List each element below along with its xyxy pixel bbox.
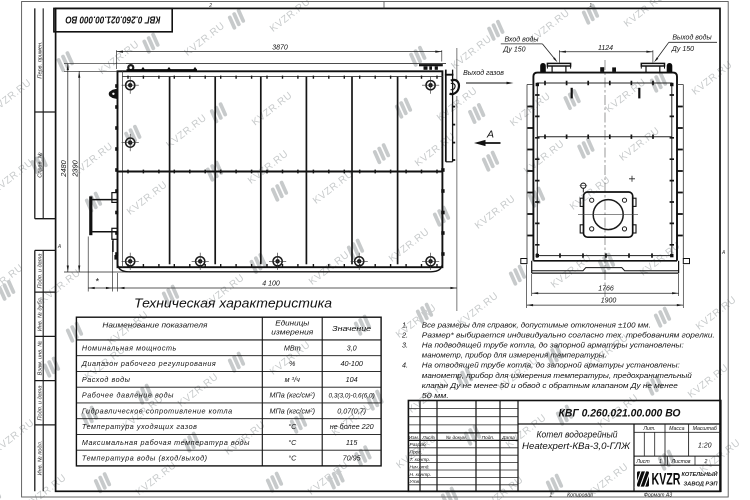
svg-text:2.: 2. (401, 330, 408, 339)
svg-text:Heatexpert-КВа-3,0-ГЛЖ: Heatexpert-КВа-3,0-ГЛЖ (522, 441, 631, 452)
svg-text:На подводящей трубе котла, до: На подводящей трубе котла, до запорной а… (422, 341, 684, 350)
svg-text:А: А (721, 250, 726, 256)
svg-text:3870: 3870 (272, 44, 288, 51)
svg-text:Номинальная мощность: Номинальная мощность (82, 343, 177, 352)
svg-text:Масштаб: Масштаб (693, 426, 718, 432)
svg-text:Подп. и дата: Подп. и дата (37, 253, 43, 288)
svg-text:Дата: Дата (501, 435, 515, 441)
svg-text:104: 104 (346, 375, 358, 384)
svg-text:Все размеры для справок, допус: Все размеры для справок, допустимые откл… (422, 320, 651, 329)
svg-text:Пров.: Пров. (410, 450, 423, 456)
svg-text:Лист: Лист (635, 459, 650, 465)
svg-text:1124: 1124 (598, 45, 613, 52)
svg-text:КОТЕЛЬНЫЙ: КОТЕЛЬНЫЙ (682, 470, 718, 478)
svg-text:Гидравлическое сопротивление к: Гидравлическое сопротивление котла (82, 406, 233, 415)
svg-text:1.: 1. (402, 320, 408, 329)
svg-text:Взам. инв. №: Взам. инв. № (37, 341, 43, 376)
svg-text:3.: 3. (402, 341, 408, 350)
svg-text:Рабочее давление воды: Рабочее давление воды (82, 391, 174, 400)
svg-text:Ду 150: Ду 150 (671, 46, 694, 53)
svg-text:Значение: Значение (332, 324, 371, 333)
svg-text:°С: °С (288, 438, 297, 447)
svg-text:Инв. № подл.: Инв. № подл. (37, 441, 43, 476)
svg-text:Вход воды: Вход воды (505, 35, 540, 43)
svg-text:1766: 1766 (598, 286, 614, 293)
svg-text:Разраб.: Разраб. (410, 442, 427, 448)
svg-text:1:20: 1:20 (698, 443, 712, 450)
svg-text:№ докум.: № докум. (446, 435, 467, 441)
svg-text:Ду 150: Ду 150 (502, 47, 525, 54)
svg-text:ЗАВОД РЭП: ЗАВОД РЭП (684, 482, 718, 488)
svg-text:А: А (486, 129, 494, 141)
svg-text:А: А (57, 244, 62, 250)
svg-text:°С: °С (288, 454, 297, 463)
svg-text:Справ. №: Справ. № (37, 152, 43, 177)
svg-text:Масса: Масса (669, 426, 684, 432)
svg-text:измерения: измерения (271, 328, 313, 337)
svg-text:*: * (95, 276, 99, 286)
svg-text:Формат А3: Формат А3 (644, 493, 672, 499)
svg-text:KVZR: KVZR (652, 470, 681, 489)
svg-text:Копировал: Копировал (567, 493, 593, 499)
svg-text:Котел водогрейный: Котел водогрейный (537, 430, 619, 441)
svg-text:КВГ 0.260.021.00.000 ВО: КВГ 0.260.021.00.000 ВО (66, 14, 161, 26)
svg-text:4.: 4. (402, 361, 408, 370)
svg-text:Выход воды: Выход воды (672, 34, 712, 42)
svg-text:МПа (кгс/см2): МПа (кгс/см2) (270, 406, 315, 415)
svg-text:Лит.: Лит. (642, 426, 655, 432)
svg-text:2: 2 (704, 459, 708, 465)
svg-text:клапан Ду не менее 50 и обвод: клапан Ду не менее 50 и обвод с обратным… (422, 381, 678, 390)
svg-text:2480: 2480 (59, 159, 68, 177)
svg-text:115: 115 (346, 438, 358, 447)
svg-text:40-100: 40-100 (340, 359, 362, 368)
svg-text:Утв.: Утв. (410, 479, 421, 485)
svg-text:Перв. примен.: Перв. примен. (37, 41, 43, 78)
svg-text:Подп.: Подп. (482, 435, 495, 441)
svg-text:%: % (289, 359, 296, 368)
svg-text:Выход газов: Выход газов (463, 69, 504, 77)
svg-text:°С: °С (288, 422, 297, 431)
svg-text:Т. контр.: Т. контр. (410, 457, 431, 463)
svg-text:КВГ 0.260.021.00.000 ВО: КВГ 0.260.021.00.000 ВО (559, 407, 681, 419)
svg-text:Лист: Лист (421, 435, 434, 441)
svg-text:манометр, прибор для измерения: манометр, прибор для измерения температу… (422, 351, 607, 360)
svg-text:Температура уходящих газов: Температура уходящих газов (82, 422, 198, 431)
svg-text:Температура воды (вход/выход): Температура воды (вход/выход) (82, 454, 208, 463)
svg-text:1: 1 (659, 459, 662, 465)
svg-text:Расход воды: Расход воды (82, 375, 131, 384)
svg-text:На отводящей трубе котла, до з: На отводящей трубе котла, до запорной ар… (422, 361, 680, 370)
svg-text:0,3(3,0)-0,6(6,0): 0,3(3,0)-0,6(6,0) (329, 393, 375, 400)
svg-text:4 100: 4 100 (262, 280, 280, 287)
svg-text:Размер* выбирается индивидуаль: Размер* выбирается индивидуально согласн… (422, 330, 715, 339)
svg-text:Изм.: Изм. (409, 435, 419, 441)
svg-text:Н. контр.: Н. контр. (410, 472, 432, 478)
svg-text:Нач.отд.: Нач.отд. (410, 464, 430, 470)
svg-text:70/95: 70/95 (343, 454, 362, 463)
svg-text:0,07(0,7): 0,07(0,7) (337, 406, 366, 415)
svg-text:Наименование показателя: Наименование показателя (102, 321, 207, 330)
svg-text:Максимальная рабочая температу: Максимальная рабочая температура воды (82, 438, 250, 447)
svg-text:1900: 1900 (601, 298, 617, 305)
svg-text:Техническая характеристика: Техническая характеристика (134, 296, 332, 311)
svg-text:Диапазон рабочего регулировани: Диапазон рабочего регулирования (81, 359, 216, 368)
svg-text:Единицы: Единицы (275, 319, 310, 328)
svg-text:МПа (кгс/см2): МПа (кгс/см2) (270, 391, 315, 400)
svg-text:манометр, прибор для измерения: манометр, прибор для измерения температу… (422, 371, 692, 380)
svg-text:Инв. № дубл.: Инв. № дубл. (37, 297, 43, 331)
svg-text:МВт: МВт (284, 343, 301, 352)
svg-text:не более 220: не более 220 (330, 422, 374, 431)
svg-text:50 мм.: 50 мм. (422, 391, 449, 400)
svg-text:3,0: 3,0 (347, 343, 357, 352)
svg-text:2390: 2390 (71, 159, 80, 177)
svg-text:1: 1 (549, 493, 552, 499)
svg-text:1: 1 (589, 3, 592, 9)
svg-text:Листов: Листов (671, 459, 691, 465)
svg-text:2: 2 (208, 3, 212, 9)
svg-text:Подп. и дата: Подп. и дата (37, 385, 43, 420)
